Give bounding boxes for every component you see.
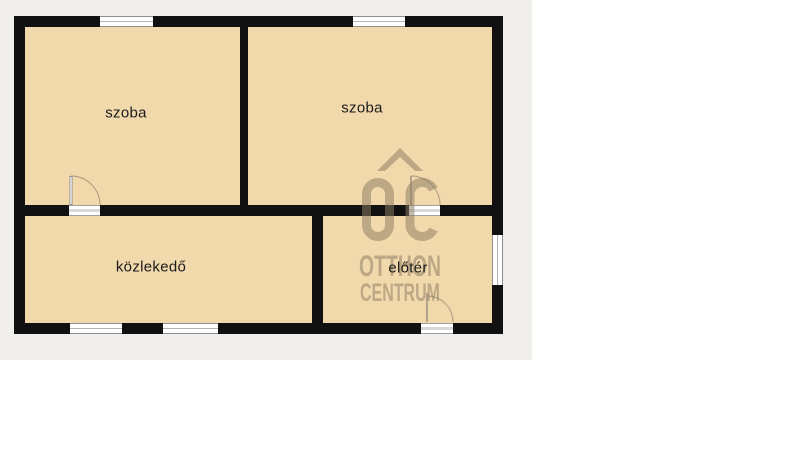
room-label-szoba-left: szoba — [105, 105, 147, 122]
wall-divider-hall-foyer — [312, 216, 323, 323]
wall-divider-horizontal-right — [440, 205, 492, 216]
room-label-szoba-right: szoba — [341, 100, 383, 117]
door-threshold-szoba-right — [409, 205, 440, 216]
wall-divider-between-rooms — [240, 27, 248, 205]
window-top-right — [353, 16, 405, 27]
wall-divider-horizontal-mid — [100, 205, 409, 216]
window-bottom-mid — [163, 323, 218, 334]
window-bottom-left — [70, 323, 122, 334]
window-top-left — [100, 16, 153, 27]
floor-area — [25, 27, 492, 323]
wall-divider-horizontal-left — [25, 205, 69, 216]
floorplan-page: OC OTTHON CENTRUM szoba szoba közlekedő … — [0, 0, 800, 450]
door-threshold-szoba-left — [69, 205, 100, 216]
room-label-eloter: előtér — [388, 260, 427, 277]
room-label-kozlekedo: közlekedő — [116, 259, 186, 276]
window-right — [492, 235, 503, 285]
door-threshold-entrance — [421, 323, 453, 334]
